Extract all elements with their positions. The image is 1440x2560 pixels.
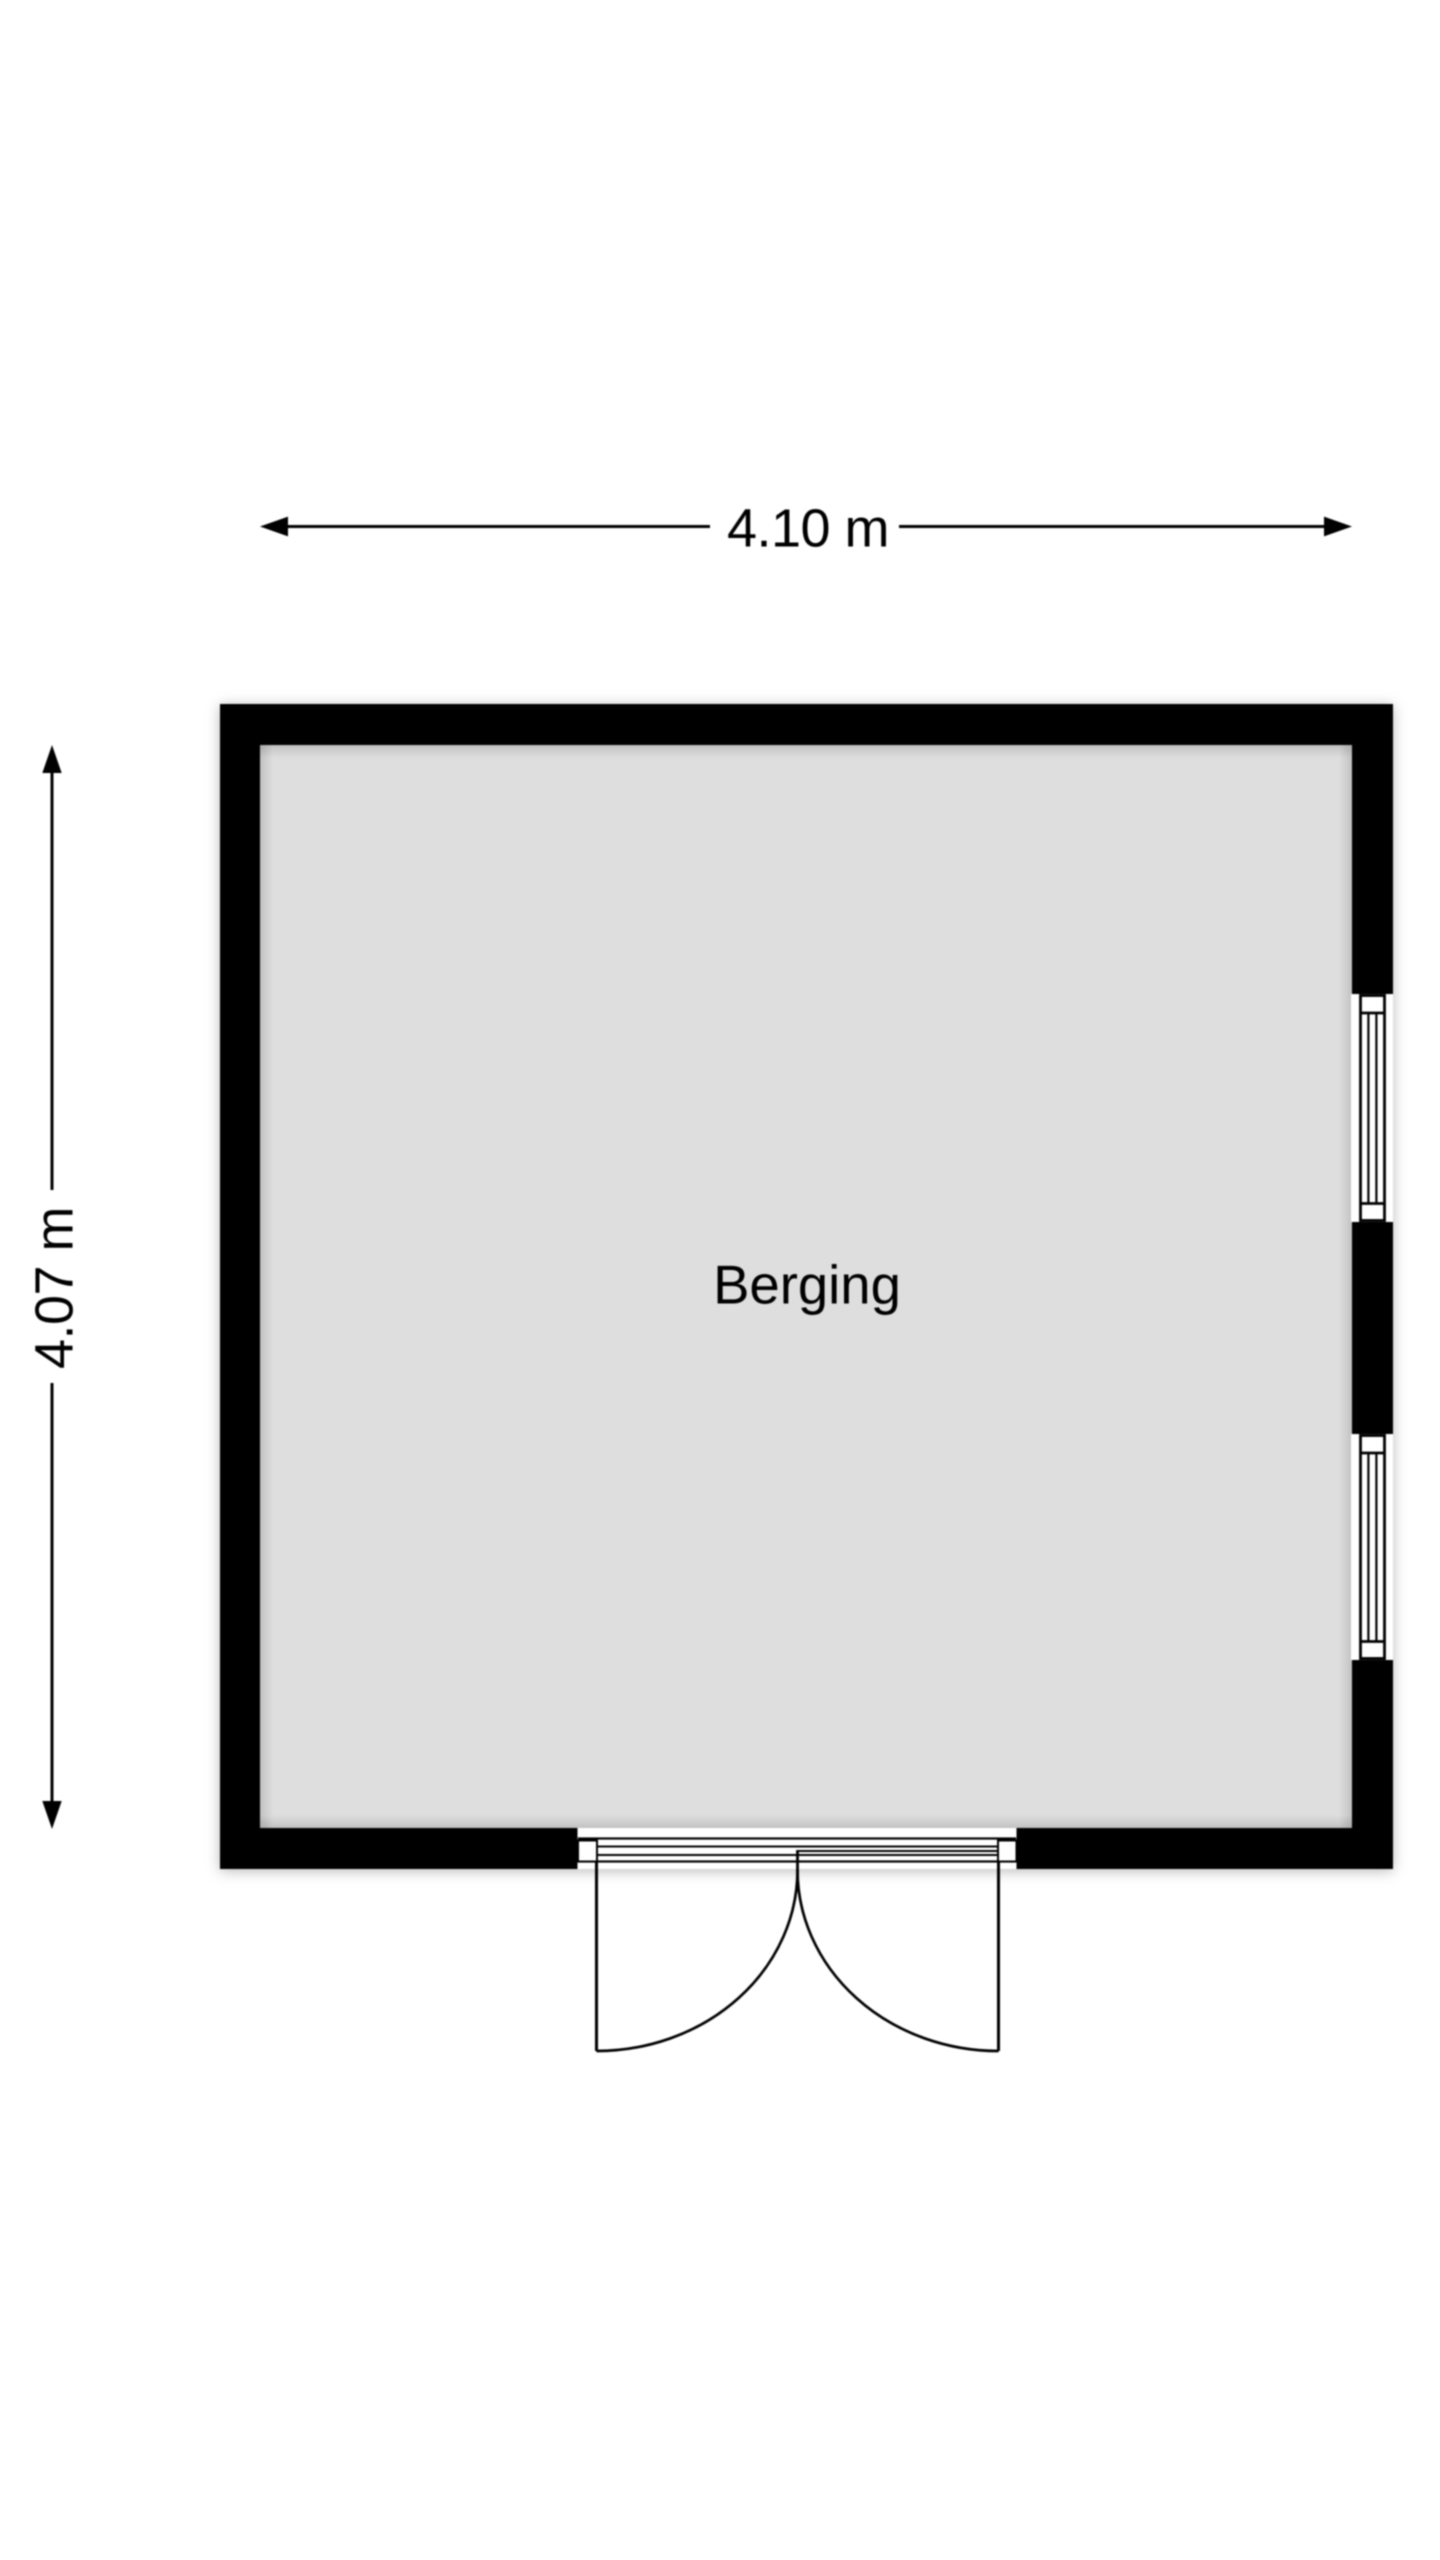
svg-text:4.07 m: 4.07 m <box>25 1207 85 1369</box>
svg-text:4.10 m: 4.10 m <box>727 499 889 559</box>
svg-text:Berging: Berging <box>713 1255 901 1316</box>
